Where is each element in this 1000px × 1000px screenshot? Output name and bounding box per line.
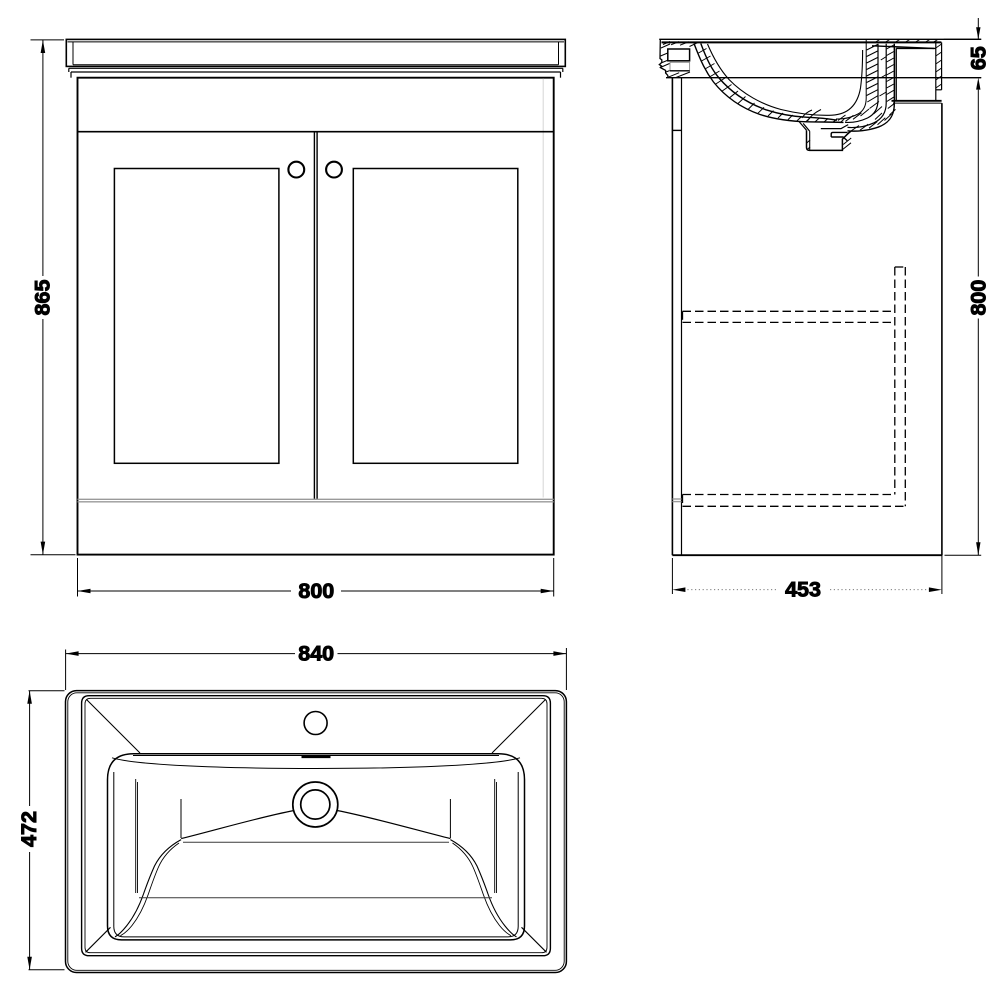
svg-text:840: 840 <box>298 642 334 666</box>
svg-text:800: 800 <box>298 579 334 603</box>
svg-text:65: 65 <box>967 46 991 70</box>
svg-text:453: 453 <box>785 578 821 602</box>
svg-text:800: 800 <box>966 280 990 316</box>
svg-text:865: 865 <box>30 280 54 316</box>
svg-text:472: 472 <box>17 811 41 847</box>
